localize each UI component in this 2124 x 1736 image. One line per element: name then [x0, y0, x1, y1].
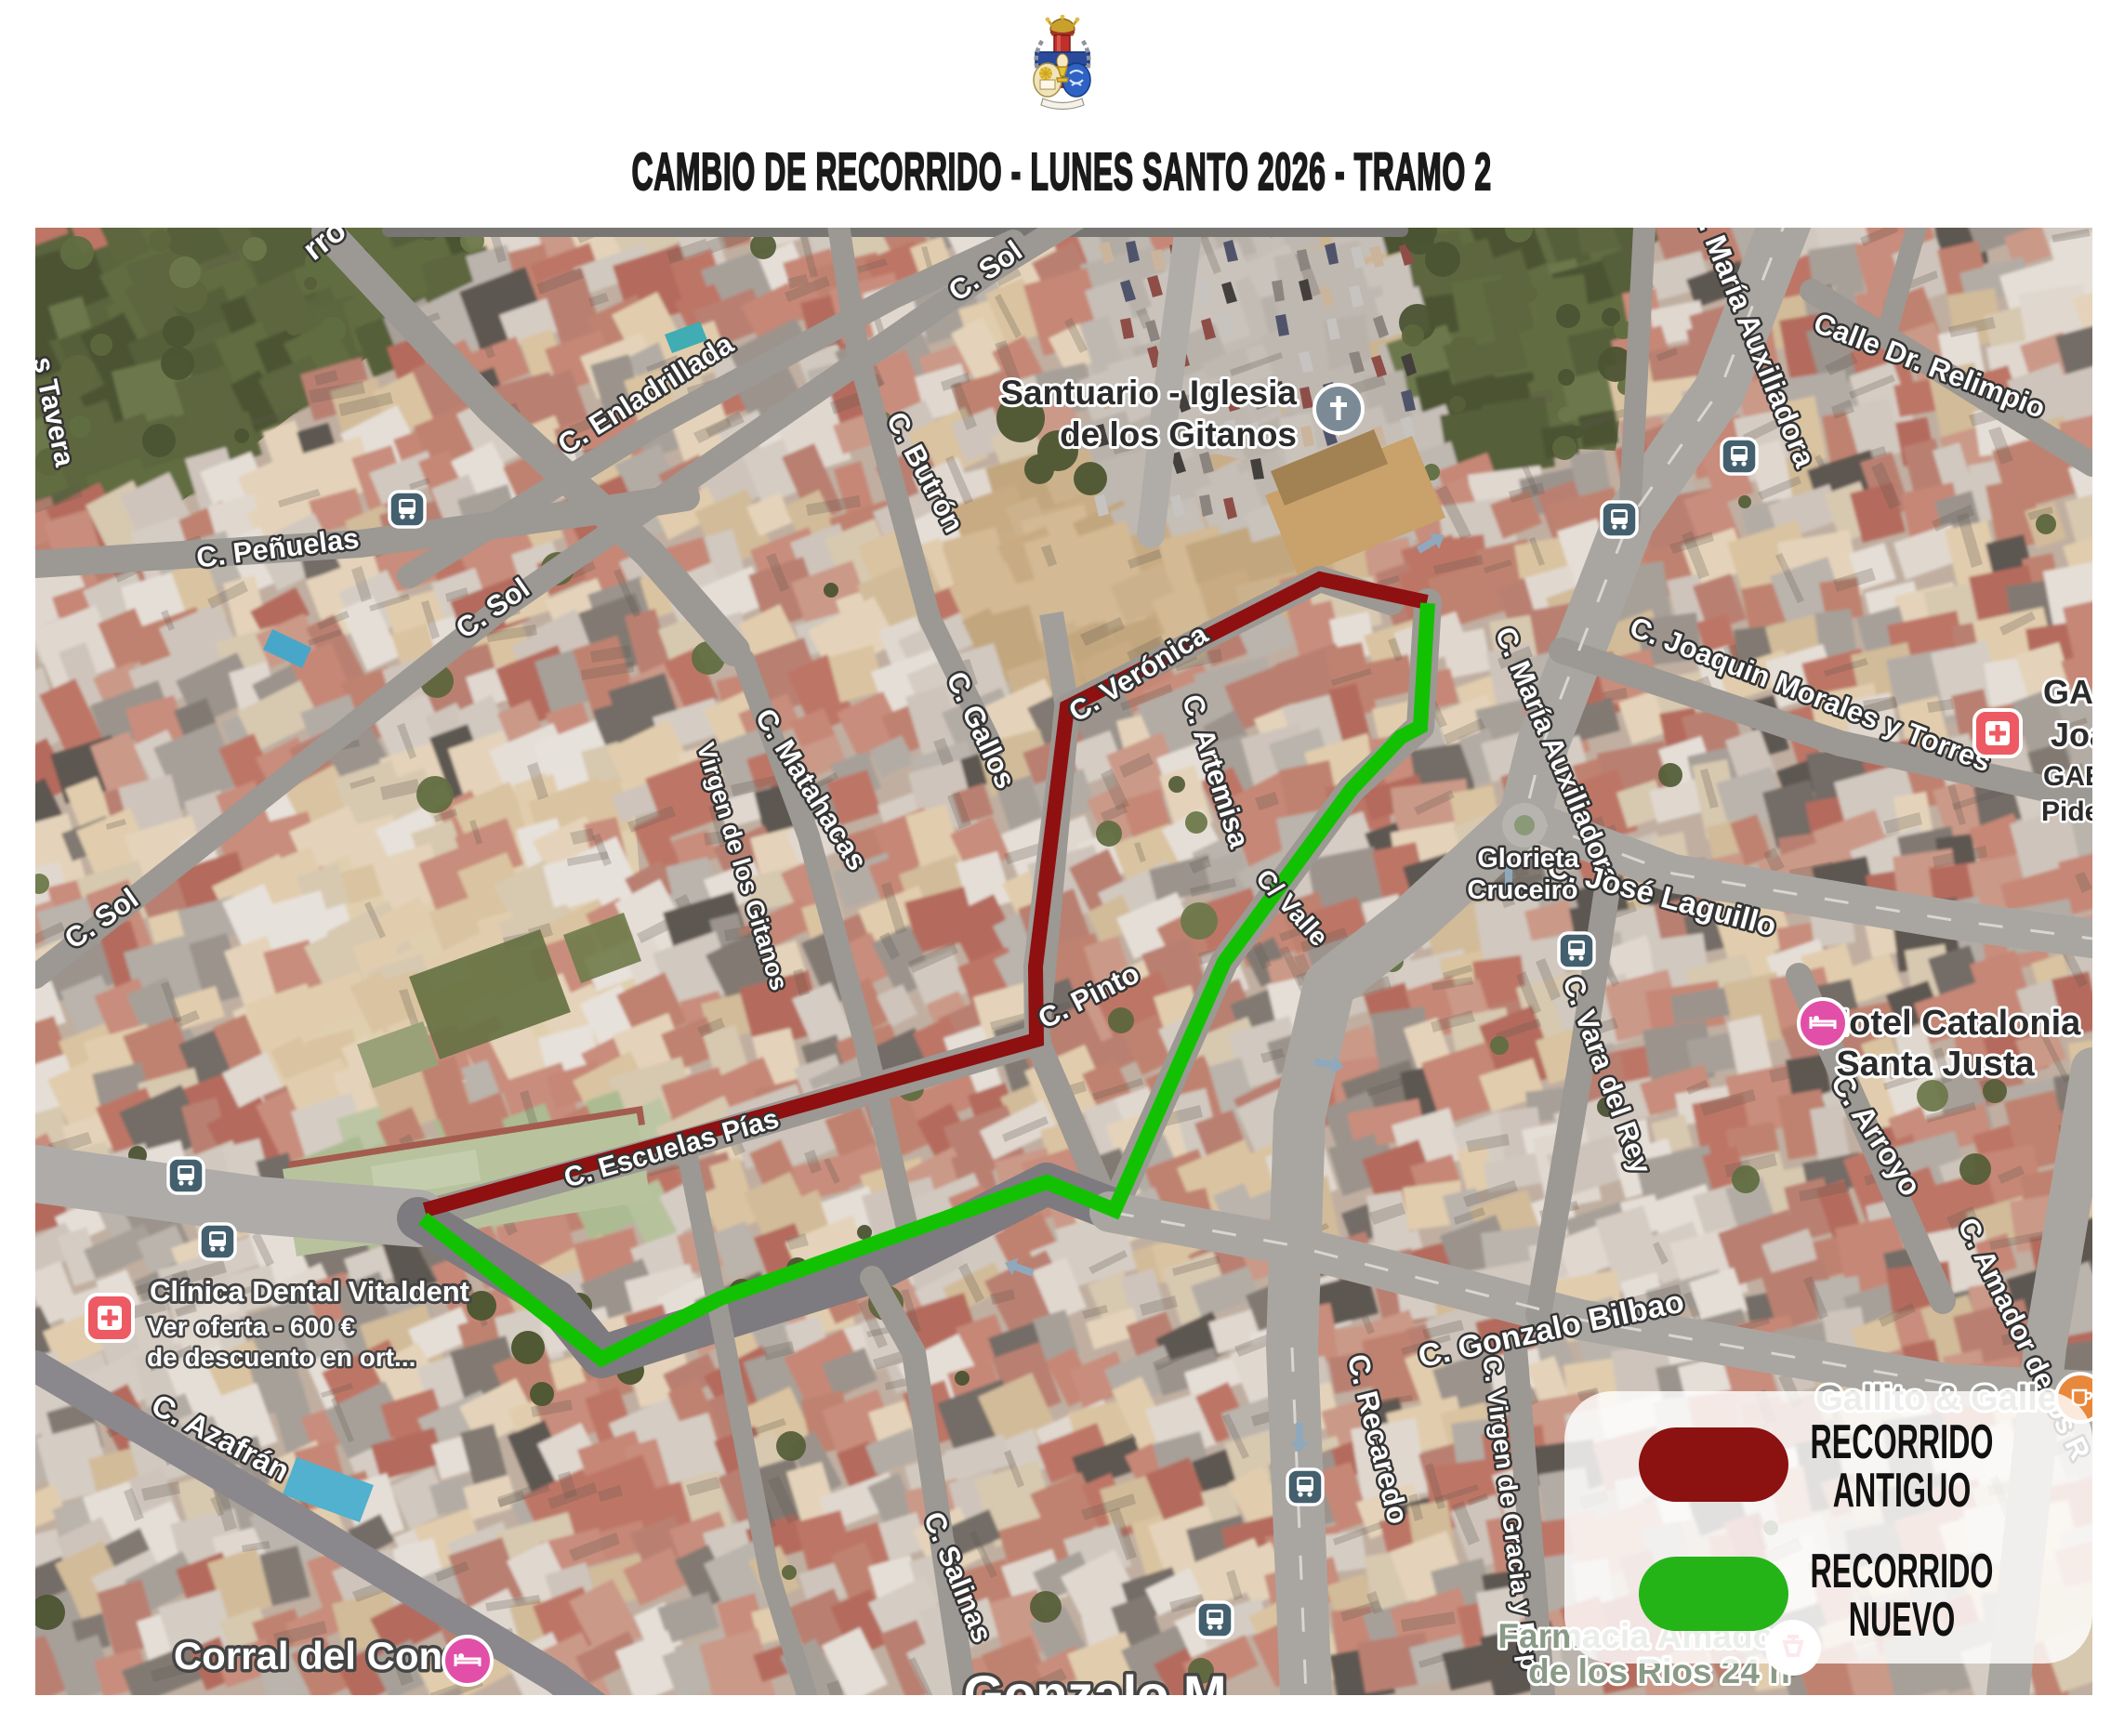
svg-text:Ver oferta - 600 €: Ver oferta - 600 €: [147, 1312, 356, 1341]
svg-text:Joac: Joac: [2051, 716, 2092, 754]
svg-text:de los Gitanos: de los Gitanos: [1060, 415, 1297, 454]
svg-text:RECORRIDO: RECORRIDO: [1811, 1545, 1994, 1598]
svg-text:NUEVO: NUEVO: [1849, 1593, 1956, 1647]
svg-text:RECORRIDO: RECORRIDO: [1811, 1415, 1994, 1469]
svg-text:GAE: GAE: [2043, 673, 2092, 711]
svg-text:GAES: GAES: [2043, 761, 2092, 792]
svg-text:Santuario - Iglesia: Santuario - Iglesia: [1000, 374, 1297, 412]
svg-text:Clínica Dental Vitaldent: Clínica Dental Vitaldent: [150, 1275, 469, 1308]
svg-text:ANTIGUO: ANTIGUO: [1833, 1464, 1972, 1518]
svg-text:Gonzalo M: Gonzalo M: [963, 1664, 1226, 1695]
svg-text:Cruceiro: Cruceiro: [1467, 875, 1577, 905]
svg-text:Glorieta: Glorieta: [1477, 844, 1579, 874]
svg-text:Pide c: Pide c: [2041, 796, 2092, 827]
svg-text:Corral del Conde: Corral del Conde: [174, 1634, 488, 1677]
svg-text:Hotel Catalonia: Hotel Catalonia: [1824, 1004, 2081, 1043]
svg-text:de descuento en ort...: de descuento en ort...: [147, 1343, 416, 1372]
svg-text:Santa Justa: Santa Justa: [1836, 1045, 2035, 1084]
